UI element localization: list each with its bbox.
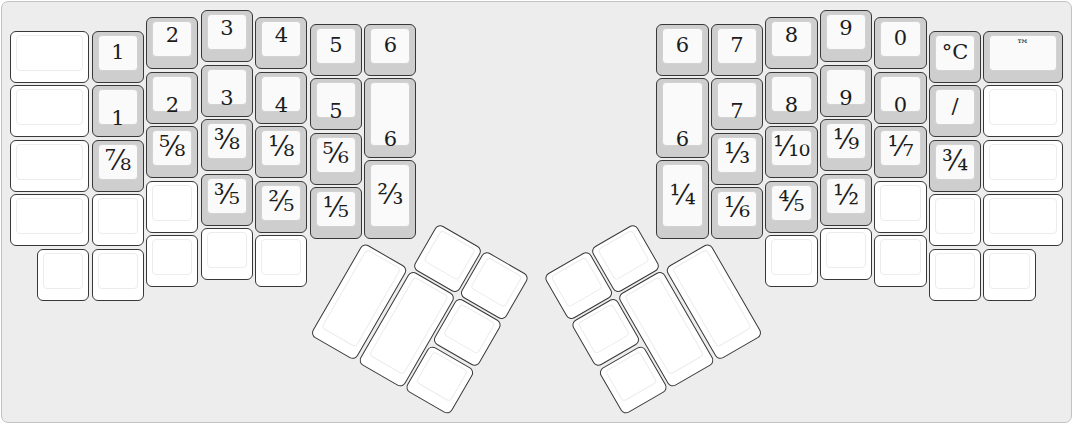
keycap-top-surface: ½ <box>826 178 866 214</box>
key-legend: 8 <box>772 94 810 116</box>
key-legend: 6 <box>371 34 409 56</box>
keycap-top-surface: ⅞ <box>98 144 138 180</box>
key-legend: ⅕ <box>317 194 355 222</box>
keycap-top-surface: ⅗ <box>207 178 247 214</box>
keycap-top-surface: 5 <box>316 82 356 118</box>
keycap-top-surface: 8 <box>771 21 811 57</box>
key-legend: ⅖ <box>262 187 300 215</box>
key-legend: °C <box>936 41 974 63</box>
keycap-top-surface: 6 <box>662 82 702 145</box>
key-slash[interactable]: / <box>929 85 981 137</box>
keycap-top-surface: 4 <box>261 21 301 57</box>
key-legend: 5 <box>317 34 355 56</box>
key-6[interactable]: 6 <box>364 24 416 76</box>
key-blank[interactable] <box>929 194 981 246</box>
key-9[interactable]: 9 <box>820 65 872 117</box>
key-7-8[interactable]: ⅞ <box>92 140 144 192</box>
key-9[interactable]: 9 <box>820 10 872 62</box>
keycap-top-surface <box>989 89 1056 125</box>
key-blank[interactable] <box>146 181 198 233</box>
keycap-top-surface <box>152 185 192 221</box>
key-legend: 0 <box>881 27 919 49</box>
key-1-8[interactable]: ⅛ <box>255 126 307 178</box>
keycap-top-surface: 2 <box>152 76 192 112</box>
key-3[interactable]: 3 <box>201 65 253 117</box>
keycap-top-surface <box>16 144 83 180</box>
key-legend: ⅔ <box>371 180 409 208</box>
key-legend: ™ <box>990 38 1055 52</box>
keycap-top-surface: ¾ <box>935 144 975 180</box>
keycap-top-surface: ⅝ <box>152 130 192 166</box>
keycap-top-surface: 3 <box>207 14 247 50</box>
keycap-top-surface: 9 <box>826 14 866 50</box>
key-0[interactable]: 0 <box>874 17 926 69</box>
key-3-5[interactable]: ⅗ <box>201 174 253 226</box>
key-legend: 4 <box>262 24 300 46</box>
keycap-top-surface: 2 <box>152 21 192 57</box>
key-legend: ⅘ <box>772 187 810 215</box>
key-1-7[interactable]: ⅐ <box>874 126 926 178</box>
key-blank[interactable] <box>765 235 817 287</box>
key-legend: 9 <box>827 17 865 39</box>
keycap-top-surface <box>261 239 301 275</box>
key-legend: 1 <box>99 41 137 63</box>
keycap-top-surface: ⅚ <box>316 137 356 173</box>
key-legend: 6 <box>371 128 409 150</box>
key-legend: ⅒ <box>772 133 810 161</box>
key-7[interactable]: 7 <box>711 24 763 76</box>
key-blank[interactable] <box>92 249 144 301</box>
keycap-top-surface <box>43 253 83 289</box>
key-6[interactable]: 6 <box>656 24 708 76</box>
keycap-top-surface: 1 <box>98 89 138 125</box>
keycap-top-surface: ⅖ <box>261 185 301 221</box>
keycap-top-surface: 6 <box>370 28 410 64</box>
key-blank[interactable] <box>929 249 981 301</box>
key-5[interactable]: 5 <box>310 24 362 76</box>
key-blank[interactable] <box>820 228 872 280</box>
keycap-top-surface <box>16 89 83 125</box>
keycap-top-surface: 8 <box>771 76 811 112</box>
keycap-top-surface: 0 <box>880 21 920 57</box>
keycap-top-surface: 6 <box>662 28 702 64</box>
keycap-top-surface <box>880 185 920 221</box>
key-blank[interactable] <box>10 31 89 83</box>
key-legend: 9 <box>827 87 865 109</box>
key-1-4[interactable]: ¼ <box>656 160 708 239</box>
keycap-top-surface <box>98 253 138 289</box>
key-legend: ⅗ <box>208 180 246 208</box>
key-1-6[interactable]: ⅙ <box>711 187 763 239</box>
key-5-6[interactable]: ⅚ <box>310 133 362 185</box>
key-legend: 6 <box>663 34 701 56</box>
keycap-top-surface: 7 <box>717 28 757 64</box>
key-5-8[interactable]: ⅝ <box>146 126 198 178</box>
key-1[interactable]: 1 <box>92 31 144 83</box>
keycap-top-surface: ⅙ <box>717 191 757 227</box>
key-6[interactable]: 6 <box>656 78 708 157</box>
keyboard-layout-canvas: 11⅞22⅝33⅜⅗44⅛⅖55⅚⅕66⅔ 66¼77⅓⅙88⅒⅘99⅑½00⅐… <box>0 0 1073 424</box>
key-legend: ⅞ <box>99 146 137 174</box>
key-legend: ¼ <box>663 180 701 208</box>
key-legend: 0 <box>881 94 919 116</box>
key-blank[interactable] <box>10 140 89 192</box>
keycap-top-surface <box>989 253 1029 289</box>
key-1-2[interactable]: ½ <box>820 174 872 226</box>
key-blank[interactable] <box>37 249 89 301</box>
key-7[interactable]: 7 <box>711 78 763 130</box>
key-5[interactable]: 5 <box>310 78 362 130</box>
key-legend: ⅛ <box>262 133 300 161</box>
keycap-top-surface: 6 <box>370 82 410 145</box>
keycap-top-surface: 5 <box>316 28 356 64</box>
key-2[interactable]: 2 <box>146 72 198 124</box>
keycap-top-surface <box>989 198 1056 234</box>
key-1-9[interactable]: ⅑ <box>820 119 872 171</box>
keycap-top-surface <box>935 253 975 289</box>
key-legend: / <box>936 95 974 117</box>
key-blank[interactable] <box>874 235 926 287</box>
keycap-top-surface: ⅕ <box>316 191 356 227</box>
key-3-8[interactable]: ⅜ <box>201 119 253 171</box>
key-legend: 6 <box>663 128 701 150</box>
key-legend: ⅐ <box>881 133 919 161</box>
key-legend: 3 <box>208 87 246 109</box>
key-legend: ⅜ <box>208 126 246 154</box>
keycap-top-surface <box>207 232 247 268</box>
keycap-top-surface: ™ <box>989 35 1056 71</box>
keycap-top-surface: 3 <box>207 69 247 105</box>
key-2-5[interactable]: ⅖ <box>255 181 307 233</box>
key-legend: 7 <box>718 34 756 56</box>
keycap-top-surface <box>16 35 83 71</box>
keycap-top-surface: 4 <box>261 76 301 112</box>
keycap-top-surface: ⅛ <box>261 130 301 166</box>
keycap-top-surface <box>98 198 138 234</box>
key-legend: 2 <box>153 94 191 116</box>
key-6[interactable]: 6 <box>364 78 416 157</box>
key-4-5[interactable]: ⅘ <box>765 181 817 233</box>
keycap-top-surface: 1 <box>98 35 138 71</box>
keycap-top-surface: / <box>935 89 975 125</box>
key-4[interactable]: 4 <box>255 72 307 124</box>
key-blank[interactable] <box>92 194 144 246</box>
keycap-top-surface: ⅜ <box>207 123 247 159</box>
key-legend: ⅑ <box>827 126 865 154</box>
key-legend: 8 <box>772 24 810 46</box>
keycap-top-surface <box>152 239 192 275</box>
keycap-top-surface: 9 <box>826 69 866 105</box>
key-legend: 7 <box>718 100 756 122</box>
keycap-top-surface: °C <box>935 35 975 71</box>
keycap-top-surface: ⅔ <box>370 164 410 227</box>
keycap-top-surface <box>826 232 866 268</box>
key-3[interactable]: 3 <box>201 10 253 62</box>
key-0[interactable]: 0 <box>874 72 926 124</box>
key-legend: 1 <box>99 107 137 129</box>
key-1[interactable]: 1 <box>92 85 144 137</box>
key-tm[interactable]: ™ <box>983 31 1062 83</box>
key-legend: 4 <box>262 94 300 116</box>
key-legend: ½ <box>827 180 865 208</box>
key-legend: ¾ <box>936 146 974 174</box>
key-deg-c[interactable]: °C <box>929 31 981 83</box>
keycap-top-surface <box>771 239 811 275</box>
key-blank[interactable] <box>10 85 89 137</box>
key-blank[interactable] <box>983 85 1062 137</box>
keycap-top-surface: ⅐ <box>880 130 920 166</box>
key-legend: ⅝ <box>153 133 191 161</box>
key-blank[interactable] <box>983 249 1035 301</box>
keycap-top-surface: ⅒ <box>771 130 811 166</box>
key-8[interactable]: 8 <box>765 72 817 124</box>
key-blank[interactable] <box>255 235 307 287</box>
key-legend: 5 <box>317 100 355 122</box>
key-1-3[interactable]: ⅓ <box>711 133 763 185</box>
key-blank[interactable] <box>983 140 1062 192</box>
keycap-top-surface: ⅓ <box>717 137 757 173</box>
key-3-4[interactable]: ¾ <box>929 140 981 192</box>
keycap-top-surface <box>16 198 83 234</box>
keycap-top-surface: 0 <box>880 76 920 112</box>
key-8[interactable]: 8 <box>765 17 817 69</box>
keycap-top-surface <box>935 198 975 234</box>
key-blank[interactable] <box>10 194 89 246</box>
key-legend: 3 <box>208 17 246 39</box>
key-legend: ⅓ <box>718 140 756 168</box>
key-2[interactable]: 2 <box>146 17 198 69</box>
key-legend: ⅚ <box>317 140 355 168</box>
key-legend: 2 <box>153 24 191 46</box>
key-1-10[interactable]: ⅒ <box>765 126 817 178</box>
keycap-top-surface: ⅘ <box>771 185 811 221</box>
keycap-top-surface <box>989 144 1056 180</box>
key-blank[interactable] <box>983 194 1062 246</box>
keycap-top-surface <box>880 239 920 275</box>
key-2-3[interactable]: ⅔ <box>364 160 416 239</box>
keycap-top-surface: ¼ <box>662 164 702 227</box>
key-blank[interactable] <box>874 181 926 233</box>
keycap-top-surface: ⅑ <box>826 123 866 159</box>
key-blank[interactable] <box>201 228 253 280</box>
key-4[interactable]: 4 <box>255 17 307 69</box>
key-1-5[interactable]: ⅕ <box>310 187 362 239</box>
key-blank[interactable] <box>146 235 198 287</box>
keycap-top-surface: 7 <box>717 82 757 118</box>
key-legend: ⅙ <box>718 194 756 222</box>
